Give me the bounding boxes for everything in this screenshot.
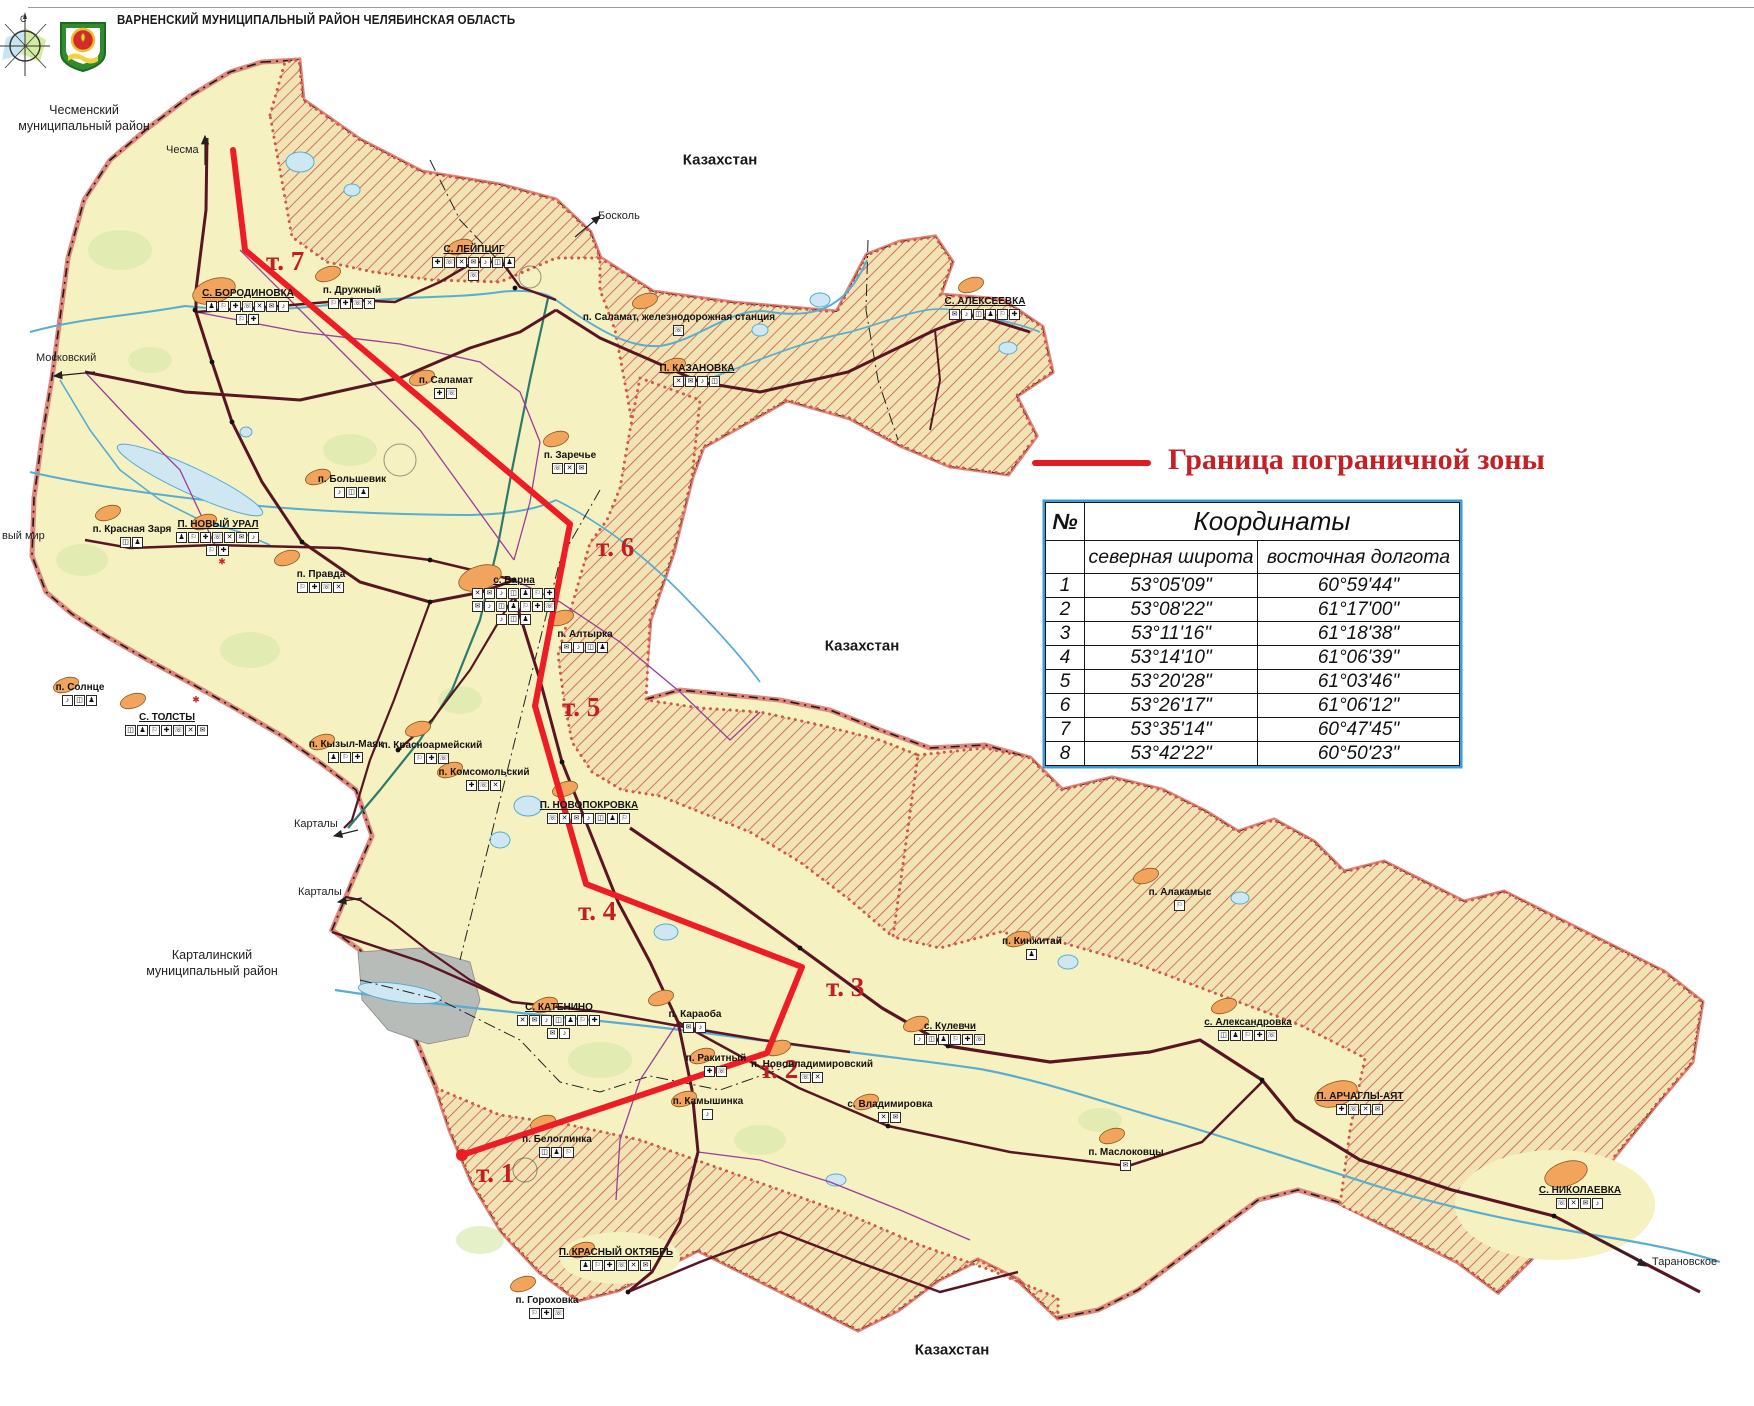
amenity-icon: ♟ [137, 725, 148, 736]
road-exit-label: Чесма [166, 144, 199, 156]
neighbor-region-label: Чесменский муниципальный район [18, 103, 150, 134]
amenity-icon: ✚ [218, 545, 229, 556]
compass-rose-icon: С [0, 10, 52, 85]
top-divider [28, 7, 1754, 8]
settlement-label: С. БОРОДИНОВКА [202, 289, 294, 299]
amenity-icon: ♪ [697, 376, 708, 387]
amenity-icons-row: ✚☏ [434, 388, 457, 399]
amenity-icon: ✉ [571, 813, 582, 824]
amenity-icon: ☏ [1266, 1030, 1277, 1041]
settlement-area [508, 1273, 537, 1294]
settlement-label: п. Саламат [419, 376, 473, 386]
amenity-icon: ♪ [484, 601, 495, 612]
amenity-icon: ✉ [561, 642, 572, 653]
amenity-icon: ♪ [480, 257, 491, 268]
amenity-icon: ☏ [438, 753, 449, 764]
amenity-icon: ✕ [254, 301, 265, 312]
amenity-icon: ✚ [704, 1066, 715, 1077]
amenity-icon: ✉ [949, 309, 960, 320]
settlement-label: П. АРЧАГЛЫ-АЯТ [1317, 1092, 1404, 1102]
amenity-icon: ☏ [553, 1308, 564, 1319]
amenity-icon: ♟ [520, 588, 531, 599]
amenity-icons-row: ☏✕✉ [552, 463, 587, 474]
amenity-icons-row: ✕✉♪◫♟⚐✚ [472, 588, 555, 599]
amenity-icon: ⚐ [218, 301, 229, 312]
amenity-icon: ♪ [496, 614, 507, 625]
amenity-icons-row: ♟⚐✚☏✕✉♪ [176, 532, 259, 543]
settlement-label: П. КАЗАНОВКА [659, 364, 734, 374]
amenity-icon: ⚐ [577, 1015, 588, 1026]
settlement-label: п. Кызыл-Маяк [309, 740, 383, 750]
amenity-icon: ✚ [962, 1034, 973, 1045]
amenity-icon: ⚐ [414, 753, 425, 764]
amenity-icons-row: ✉♪◫♟⚐✚☏ [472, 601, 555, 612]
settlement-label: С. ЛЕЙПЦИГ [443, 245, 504, 255]
settlement-label: п. Гороховка [516, 1296, 579, 1306]
amenity-icon: ✚ [589, 1015, 600, 1026]
amenity-icon: ♟ [508, 601, 519, 612]
amenity-icon: ☏ [468, 270, 479, 281]
amenity-icon: ✚ [248, 314, 259, 325]
amenity-icon: ✚ [161, 725, 172, 736]
amenity-icon: ☏ [173, 725, 184, 736]
amenity-icon: ♟ [328, 752, 339, 763]
amenity-icon: ✉ [484, 588, 495, 599]
border-zone-point-label: т. 5 [562, 694, 600, 721]
amenity-icon: ♟ [551, 1147, 562, 1158]
amenity-icon: ◫ [496, 601, 507, 612]
amenity-icon: ☏ [1348, 1104, 1359, 1115]
settlement-label: С. ТОЛСТЫ [139, 713, 195, 723]
settlement-label: с. Владимировка [847, 1100, 932, 1110]
amenity-icon: ◫ [492, 257, 503, 268]
amenity-icon: ♪ [278, 301, 289, 312]
amenity-icon: ✉ [266, 301, 277, 312]
amenity-icon: ✉ [468, 257, 479, 268]
amenity-icon: ✕ [564, 463, 575, 474]
amenity-icon: ✚ [309, 582, 320, 593]
amenity-icons-row: ✉♪ [547, 1028, 570, 1039]
amenity-icon: ♪ [961, 309, 972, 320]
amenity-icon: ♪ [496, 588, 507, 599]
amenity-icon: ⚐ [950, 1034, 961, 1045]
amenity-icon: ⚐ [532, 588, 543, 599]
amenity-icon: ⚐ [206, 545, 217, 556]
amenity-icons-row: ☏✕ [800, 1072, 823, 1083]
legend-label: Граница пограничной зоны [1168, 443, 1545, 477]
district-map-canvas [0, 0, 1754, 1406]
settlement-label: п. Солнце [56, 683, 105, 693]
amenity-icon: ☏ [974, 1034, 985, 1045]
amenity-icon: ♟ [580, 1260, 591, 1271]
amenity-icon: ◫ [553, 1015, 564, 1026]
amenity-icon: ✕ [673, 376, 684, 387]
amenity-icon: ♟ [358, 487, 369, 498]
amenity-icon: ◫ [585, 642, 596, 653]
amenity-icon: ☏ [478, 780, 489, 791]
amenity-icon: ☏ [212, 532, 223, 543]
amenity-icon: ✕ [364, 298, 375, 309]
settlement-label: п. Ракитный [686, 1054, 746, 1064]
amenity-icon: ⚐ [236, 314, 247, 325]
settlement-label: С. НИКОЛАЕВКА [1539, 1186, 1621, 1196]
table-row: 153°05'09"60°59'44" [1046, 574, 1460, 598]
amenity-icons-row: ◫♟⚐✚☏ [1218, 1030, 1277, 1041]
amenity-icon: ✚ [432, 257, 443, 268]
amenity-icon: ◫ [709, 376, 720, 387]
amenity-icons-row: ✕✉♪◫♟⚐✚ [517, 1015, 600, 1026]
settlement-label: с. Кулевчи [924, 1022, 976, 1032]
table-title: Координаты [1085, 503, 1460, 541]
amenity-icons-row: ◫♟⚐ [539, 1147, 574, 1158]
settlement-label: п. Красная Заря [93, 525, 172, 535]
amenity-icons-row: ✉♪ [683, 1022, 706, 1033]
amenity-icon: ✉ [1372, 1104, 1383, 1115]
amenity-icon: ⚐ [520, 601, 531, 612]
amenity-icon: ✕ [333, 582, 344, 593]
amenity-icon: ✉ [683, 1022, 694, 1033]
road-exit-label: вый мир [2, 530, 45, 542]
amenity-icon: ♪ [248, 532, 259, 543]
settlement-label: С. АЛЕКСЕЕВКА [945, 297, 1026, 307]
amenity-icons-row: ✚☏ [704, 1066, 727, 1077]
amenity-icon: ✉ [576, 463, 587, 474]
amenity-icon: ◫ [508, 614, 519, 625]
amenity-icon: ♪ [541, 1015, 552, 1026]
amenity-icon: ♟ [86, 695, 97, 706]
amenity-icon: ⚐ [1174, 900, 1185, 911]
amenity-icon: ✕ [812, 1072, 823, 1083]
amenity-icons-row: ♟⚐✚ [328, 752, 363, 763]
table-col-lon: восточная долгота [1258, 541, 1460, 574]
amenity-icon: ✉ [685, 376, 696, 387]
amenity-icon: ✚ [1336, 1104, 1347, 1115]
amenity-icon: ⚐ [188, 532, 199, 543]
amenity-icon: ☏ [352, 298, 363, 309]
amenity-icon: ⚐ [592, 1260, 603, 1271]
amenity-icons-row: ♪◫♟ [62, 695, 97, 706]
amenity-icon: ☏ [552, 463, 563, 474]
amenity-icon: ✉ [547, 1028, 558, 1039]
amenity-icon: ✕ [456, 257, 467, 268]
table-col-no: № [1046, 503, 1085, 541]
amenity-icon: ♟ [597, 642, 608, 653]
settlement-label: п. Заречье [544, 451, 596, 461]
settlement-area [118, 690, 147, 711]
amenity-icon: ✚ [544, 588, 555, 599]
amenity-icons-row: ✕✉ [878, 1112, 901, 1123]
settlement-label: П. КРАСНЫЙ ОКТЯБРЬ [559, 1248, 673, 1258]
amenity-icon: ✉ [197, 725, 208, 736]
amenity-icon: ⚐ [619, 813, 630, 824]
amenity-icon: ✕ [185, 725, 196, 736]
amenity-icon: ♟ [132, 537, 143, 548]
amenity-icon: ⚐ [1242, 1030, 1253, 1041]
settlement-label: с. Варна [493, 576, 535, 586]
amenity-icon: ♟ [1230, 1030, 1241, 1041]
amenity-icon: ☏ [673, 325, 684, 336]
settlement-label: П. НОВОПОКРОВКА [540, 801, 638, 811]
amenity-icon: ✚ [532, 601, 543, 612]
amenity-icons-row: ✉♪◫♟⚐✚ [949, 309, 1020, 320]
table-row: 653°26'17"61°06'12" [1046, 694, 1460, 718]
amenity-icon: ✕ [878, 1112, 889, 1123]
amenity-icons-row: ☏✕✉♪ [1556, 1198, 1603, 1209]
amenity-icon: ♟ [176, 532, 187, 543]
amenity-icon: ◫ [595, 813, 606, 824]
amenity-icon: ◫ [120, 537, 131, 548]
amenity-icon: ⚐ [328, 298, 339, 309]
poi-star-icon: ✱ [218, 558, 226, 567]
settlement-label: п. Маслоковцы [1088, 1148, 1163, 1158]
amenity-icon: ⚐ [297, 582, 308, 593]
settlement-label: п. Кинжитай [1002, 937, 1062, 947]
amenity-icon: ☏ [547, 813, 558, 824]
amenity-icon: ⚐ [529, 1308, 540, 1319]
amenity-icons-row: ♟ [1026, 949, 1037, 960]
amenity-icon: ♟ [985, 309, 996, 320]
coordinates-table: № Координаты северная широта восточная д… [1045, 502, 1460, 766]
amenity-icons-row: ⚐✚☏ [414, 753, 449, 764]
map-document: С ВАРНЕНСКИЙ МУНИЦИПАЛЬНЫЙ РАЙОН ЧЕЛЯБИН… [0, 0, 1754, 1406]
amenity-icons-row: ⚐✚☏ [529, 1308, 564, 1319]
settlement-area [956, 274, 985, 295]
country-label: Казахстан [915, 1342, 990, 1359]
amenity-icons-row: ✚☏✕✉♪◫♟ [432, 257, 515, 268]
amenity-icon: ♪ [559, 1028, 570, 1039]
table-row: 853°42'22"60°50'23" [1046, 742, 1460, 766]
amenity-icons-row: ✚☏✕✉ [1336, 1104, 1383, 1115]
amenity-icon: ♟ [1026, 949, 1037, 960]
amenity-icon: ♪ [914, 1034, 925, 1045]
table-row: 353°11'16"61°18'38" [1046, 622, 1460, 646]
amenity-icon: ✕ [1568, 1198, 1579, 1209]
amenity-icon: ◫ [1218, 1030, 1229, 1041]
country-label: Казахстан [683, 152, 758, 169]
settlement-label: п. Караоба [669, 1010, 722, 1020]
settlement-label: п. Большевик [318, 475, 386, 485]
settlement-label: п. Нововладимировский [751, 1060, 873, 1070]
amenity-icon: ✕ [490, 780, 501, 791]
amenity-icon: ✕ [559, 813, 570, 824]
settlement-label: с. Александровка [1204, 1018, 1292, 1028]
amenity-icon: ✚ [466, 780, 477, 791]
amenity-icon: ✕ [472, 588, 483, 599]
settlement-label: п. Дружный [323, 286, 381, 296]
amenity-icon: ✕ [628, 1260, 639, 1271]
amenity-icon: ☏ [716, 1066, 727, 1077]
amenity-icon: ♟ [520, 614, 531, 625]
amenity-icons-row: ⚐✚ [206, 545, 229, 556]
amenity-icon: ☏ [242, 301, 253, 312]
amenity-icon: ✉ [472, 601, 483, 612]
amenity-icon: ♪ [334, 487, 345, 498]
amenity-icon: ☏ [544, 601, 555, 612]
amenity-icons-row: ♪◫♟⚐✚☏ [914, 1034, 985, 1045]
amenity-icon: ✉ [890, 1112, 901, 1123]
border-zone-endpoint [456, 1149, 468, 1161]
amenity-icon: ♪ [573, 642, 584, 653]
amenity-icons-row: ✉ [1120, 1160, 1131, 1171]
amenity-icon: ✚ [541, 1308, 552, 1319]
amenity-icon: ✚ [604, 1260, 615, 1271]
amenity-icons-row: ✕✉♪◫ [673, 376, 720, 387]
amenity-icon: ☏ [1556, 1198, 1567, 1209]
amenity-icon: ✚ [230, 301, 241, 312]
amenity-icon: ✚ [426, 753, 437, 764]
amenity-icons-row: ☏ [673, 325, 684, 336]
settlement-label: п. Алтырка [557, 630, 612, 640]
amenity-icon: ◫ [74, 695, 85, 706]
table-row: 553°20'28"61°03'46" [1046, 670, 1460, 694]
amenity-icon: ♟ [607, 813, 618, 824]
amenity-icon: ✚ [434, 388, 445, 399]
amenity-icon: ◫ [973, 309, 984, 320]
amenity-icon: ◫ [539, 1147, 550, 1158]
settlement-label: П. НОВЫЙ УРАЛ [177, 520, 258, 530]
road-exit-label: Тарановское [1652, 1256, 1717, 1268]
amenity-icon: ◫ [346, 487, 357, 498]
border-zone-point-label: т. 6 [596, 534, 634, 561]
settlement-label: п. Алакамыс [1149, 888, 1212, 898]
settlement-label: п. Красноармейский [382, 741, 483, 751]
amenity-icon: ☏ [616, 1260, 627, 1271]
amenity-icon: ✚ [1009, 309, 1020, 320]
amenity-icon: ✉ [640, 1260, 651, 1271]
settlement-label: п. Саламат, железнодорожная станция [583, 313, 775, 323]
page-title: ВАРНЕНСКИЙ МУНИЦИПАЛЬНЫЙ РАЙОН ЧЕЛЯБИНСК… [117, 13, 515, 27]
amenity-icon: ⚐ [997, 309, 1008, 320]
amenity-icons-row: ♪◫♟ [334, 487, 369, 498]
amenity-icons-row: ♟⚐✚☏✕✉ [580, 1260, 651, 1271]
amenity-icon: ✉ [529, 1015, 540, 1026]
road-exit-label: Московский [36, 352, 96, 364]
amenity-icon: ✕ [224, 532, 235, 543]
amenity-icon: ♪ [583, 813, 594, 824]
amenity-icon: ✚ [1254, 1030, 1265, 1041]
border-zone-point-label: т. 1 [476, 1160, 514, 1187]
road-exit-label: Карталы [298, 886, 342, 898]
amenity-icon: ♟ [206, 301, 217, 312]
amenity-icons-row: ✉♪◫♟ [561, 642, 608, 653]
settlement-label: п. Комсомольский [439, 768, 530, 778]
amenity-icon: ✚ [340, 298, 351, 309]
road-exit-label: Босколь [598, 210, 640, 222]
amenity-icon: ♪ [702, 1109, 713, 1120]
amenity-icon: ⚐ [340, 752, 351, 763]
amenity-icons-row: ⚐ [1174, 900, 1185, 911]
settlement-label: п. Камышинка [673, 1097, 743, 1107]
amenity-icon: ✉ [236, 532, 247, 543]
amenity-icon: ⚐ [563, 1147, 574, 1158]
amenity-icon: ✉ [1580, 1198, 1591, 1209]
neighbor-region-label: Карталинский муниципальный район [146, 948, 278, 979]
amenity-icon: ♟ [565, 1015, 576, 1026]
amenity-icon: ✉ [1120, 1160, 1131, 1171]
amenity-icon: ♟ [504, 257, 515, 268]
amenity-icons-row: ☏ [468, 270, 479, 281]
amenity-icon: ◫ [125, 725, 136, 736]
amenity-icon: ☏ [800, 1072, 811, 1083]
amenity-icon: ♟ [938, 1034, 949, 1045]
table-col-lat: северная широта [1085, 541, 1258, 574]
table-row: 753°35'14"60°47'45" [1046, 718, 1460, 742]
amenity-icons-row: ⚐✚☏✕ [297, 582, 344, 593]
district-emblem [58, 20, 108, 79]
amenity-icons-row: ♪◫♟ [496, 614, 531, 625]
amenity-icons-row: ◫♟⚐✚☏✕✉ [125, 725, 208, 736]
border-zone-point-label: т. 4 [578, 898, 616, 925]
country-label: Казахстан [825, 638, 900, 655]
amenity-icon: ✚ [200, 532, 211, 543]
amenity-icon: ☏ [444, 257, 455, 268]
amenity-icon: ♪ [62, 695, 73, 706]
settlement-label: п. Правда [297, 570, 346, 580]
road-exit-label: Карталы [294, 818, 338, 830]
border-zone-point-label: т. 7 [266, 248, 304, 275]
amenity-icon: ✕ [517, 1015, 528, 1026]
amenity-icon: ☏ [446, 388, 457, 399]
amenity-icons-row: ♪ [702, 1109, 713, 1120]
amenity-icons-row: ⚐✚☏✕ [328, 298, 375, 309]
amenity-icon: ⚐ [149, 725, 160, 736]
amenity-icons-row: ◫♟ [120, 537, 143, 548]
poi-star-icon: ✱ [192, 696, 200, 705]
amenity-icon: ✕ [1360, 1104, 1371, 1115]
amenity-icon: ☏ [321, 582, 332, 593]
amenity-icons-row: ⚐✚ [236, 314, 259, 325]
amenity-icon: ◫ [926, 1034, 937, 1045]
table-row: 253°08'22"61°17'00" [1046, 598, 1460, 622]
amenity-icon: ✚ [352, 752, 363, 763]
table-row: 453°14'10"61°06'39" [1046, 646, 1460, 670]
amenity-icon: ◫ [508, 588, 519, 599]
amenity-icon: ♪ [1592, 1198, 1603, 1209]
amenity-icons-row: ☏✕✉♪◫♟⚐ [547, 813, 630, 824]
amenity-icons-row: ♟⚐✚☏✕✉♪ [206, 301, 289, 312]
settlement-label: С. КАТЕНИНО [525, 1003, 593, 1013]
settlement-label: п. Белоглинка [522, 1135, 592, 1145]
svg-text:С: С [20, 14, 27, 24]
border-zone-point-label: т. 3 [826, 974, 864, 1001]
amenity-icons-row: ✚☏✕ [466, 780, 501, 791]
amenity-icon: ♪ [695, 1022, 706, 1033]
